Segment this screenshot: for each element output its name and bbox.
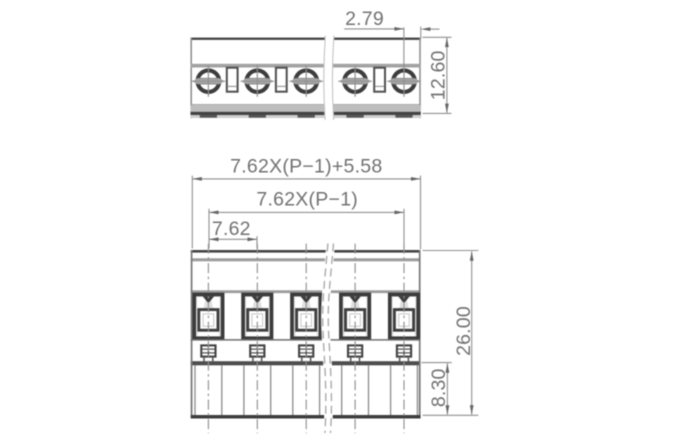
- svg-text:7.62X(P−1)+5.58: 7.62X(P−1)+5.58: [230, 155, 382, 177]
- svg-text:7.62: 7.62: [212, 218, 251, 240]
- svg-text:2.79: 2.79: [345, 8, 384, 30]
- svg-text:26.00: 26.00: [453, 306, 475, 356]
- svg-text:12.60: 12.60: [428, 50, 450, 100]
- svg-text:8.30: 8.30: [428, 368, 450, 407]
- svg-text:7.62X(P−1): 7.62X(P−1): [256, 189, 358, 211]
